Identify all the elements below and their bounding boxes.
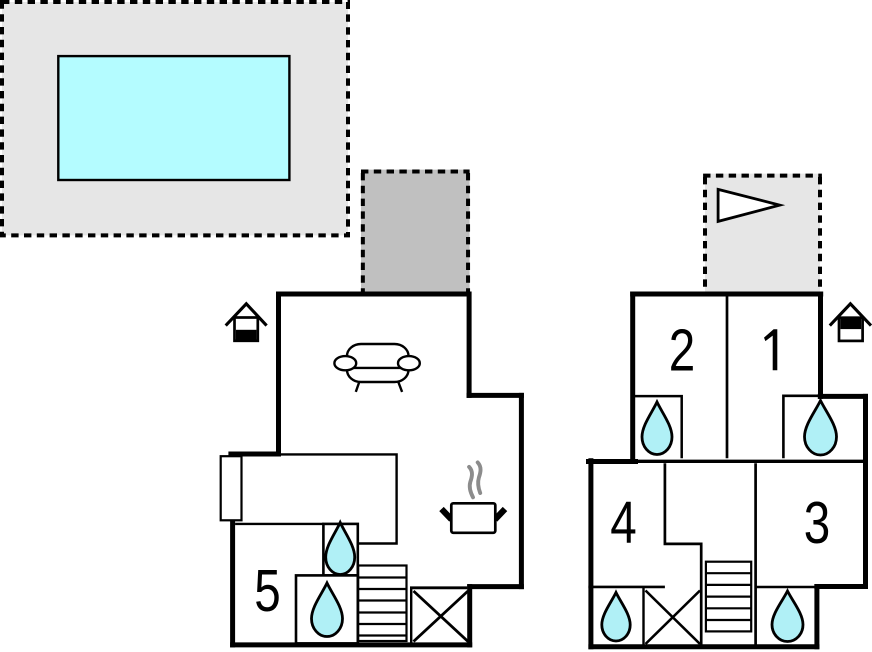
svg-text:4: 4 — [610, 490, 637, 556]
svg-text:3: 3 — [804, 490, 831, 556]
svg-text:2: 2 — [669, 318, 696, 384]
svg-text:5: 5 — [254, 558, 281, 624]
